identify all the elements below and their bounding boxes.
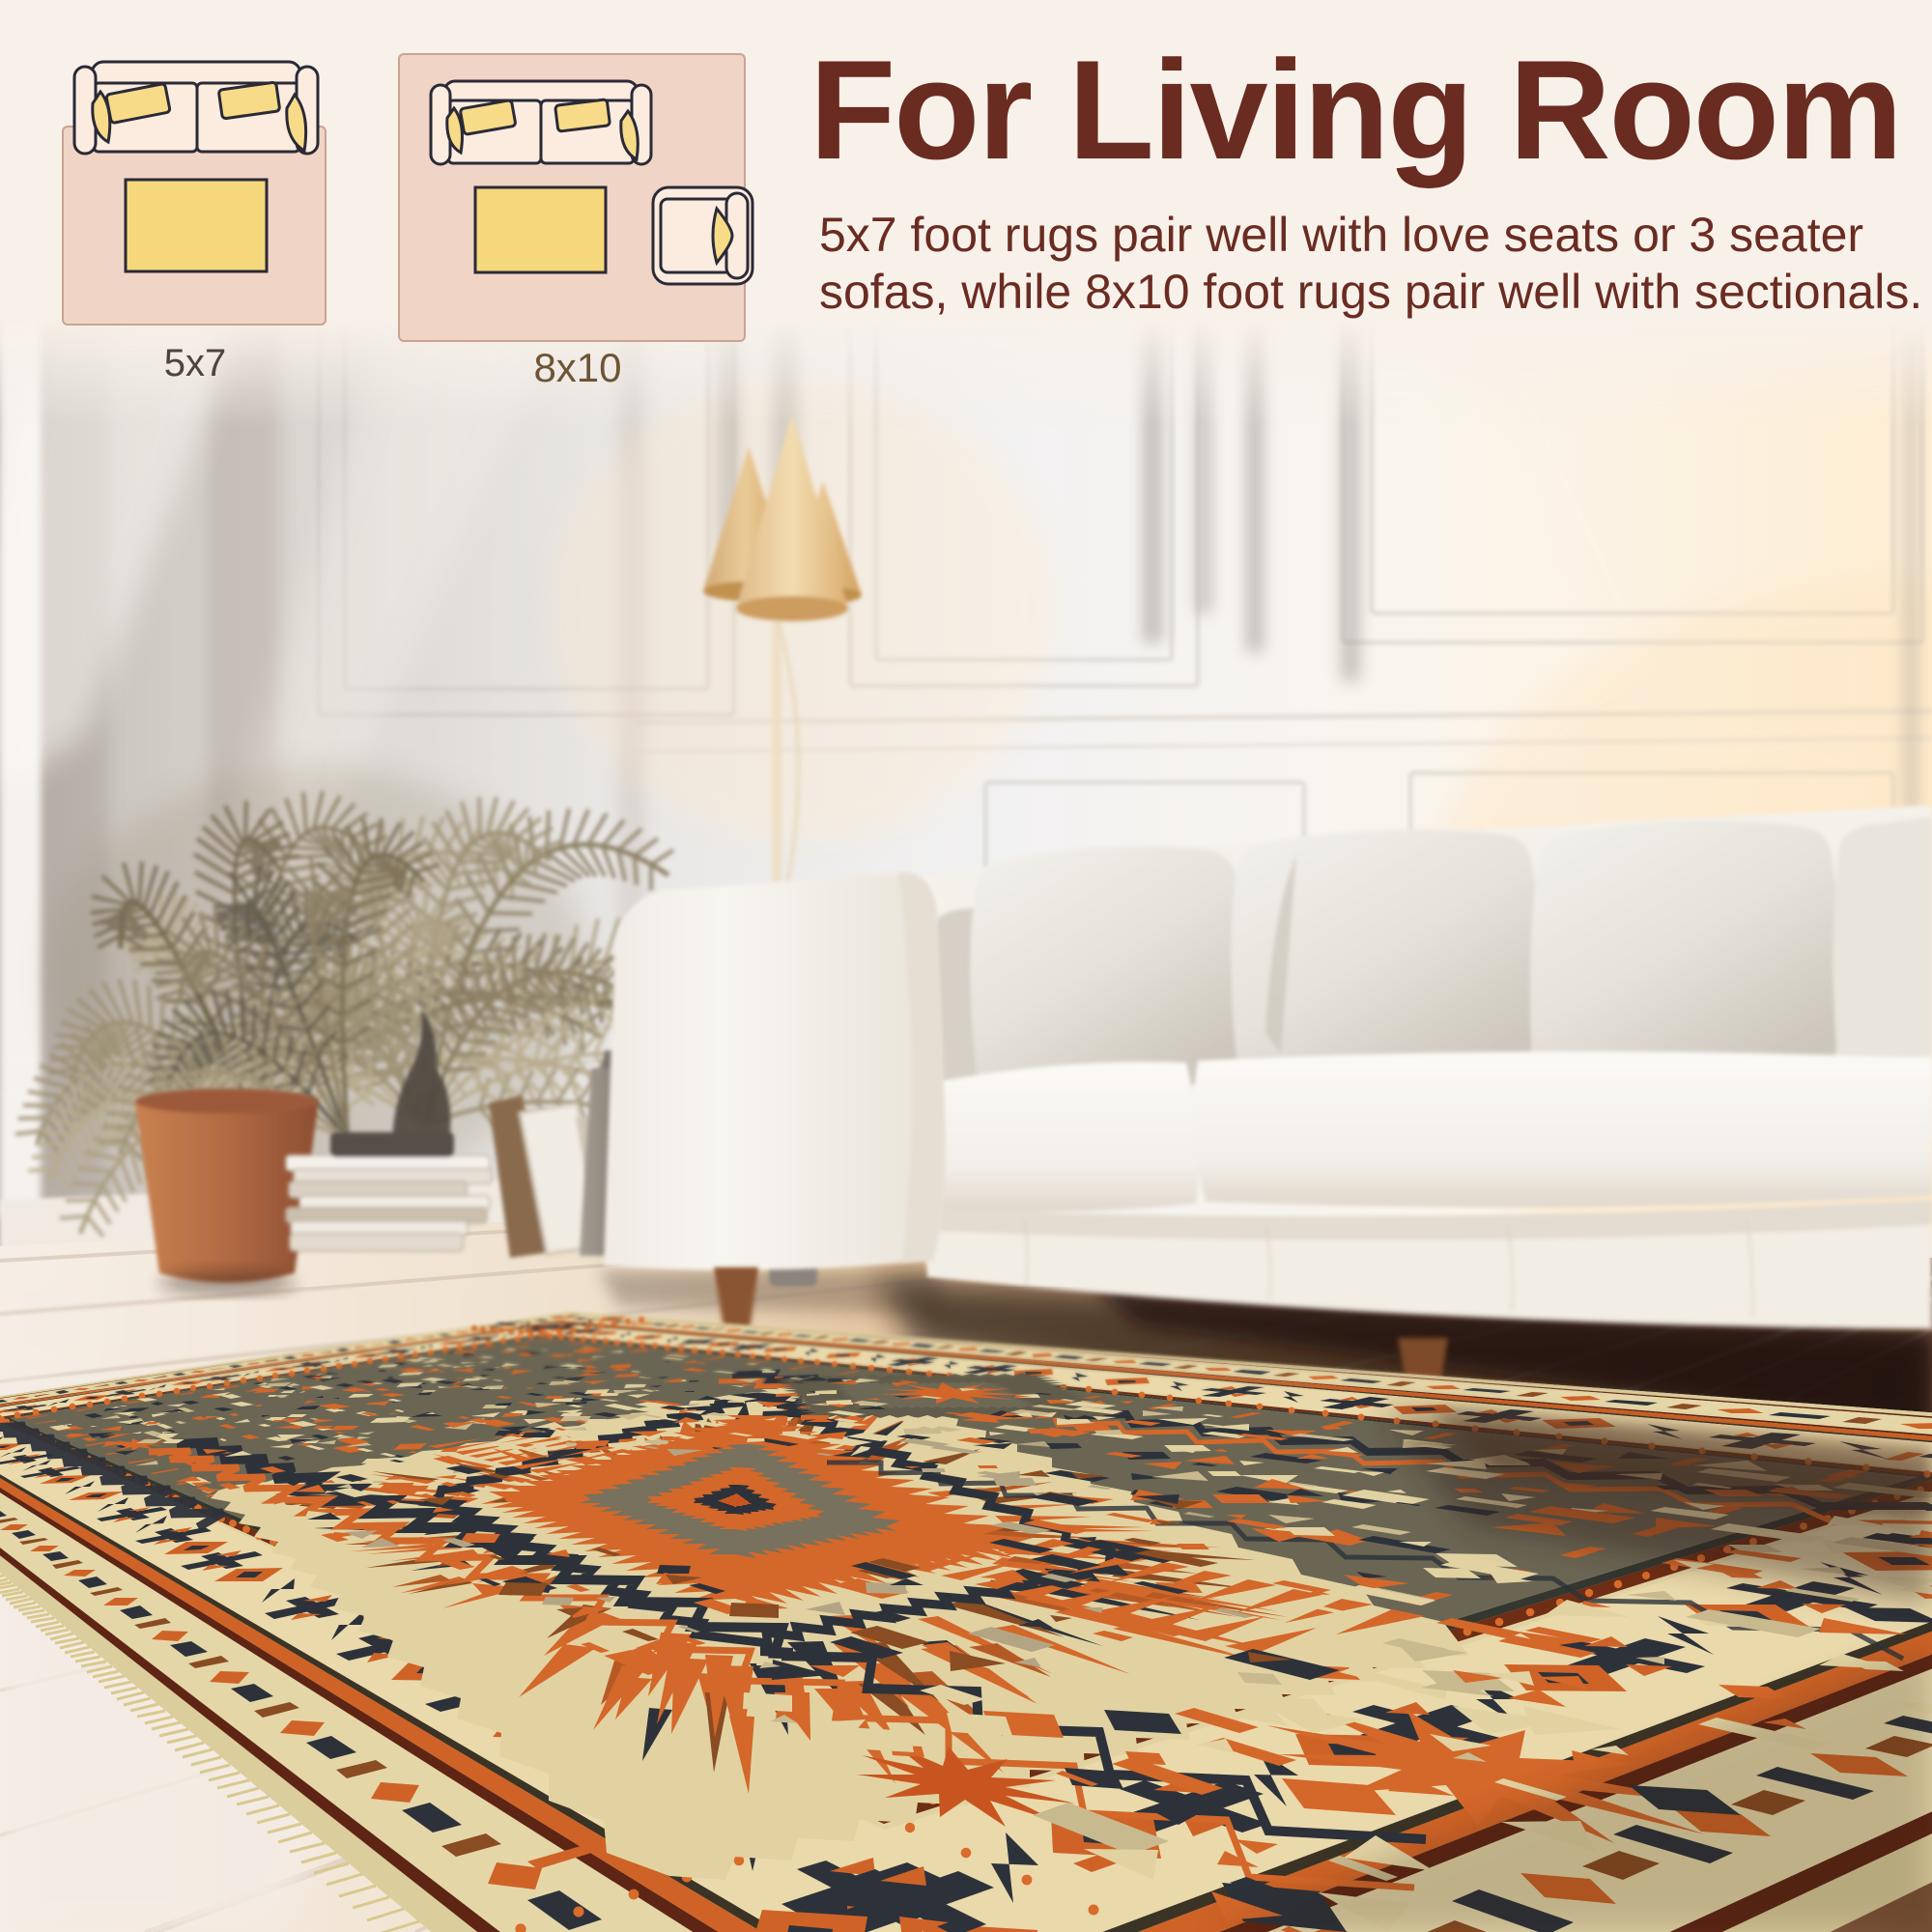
svg-text:8x10: 8x10 (533, 345, 621, 390)
svg-text:5x7: 5x7 (164, 342, 227, 384)
